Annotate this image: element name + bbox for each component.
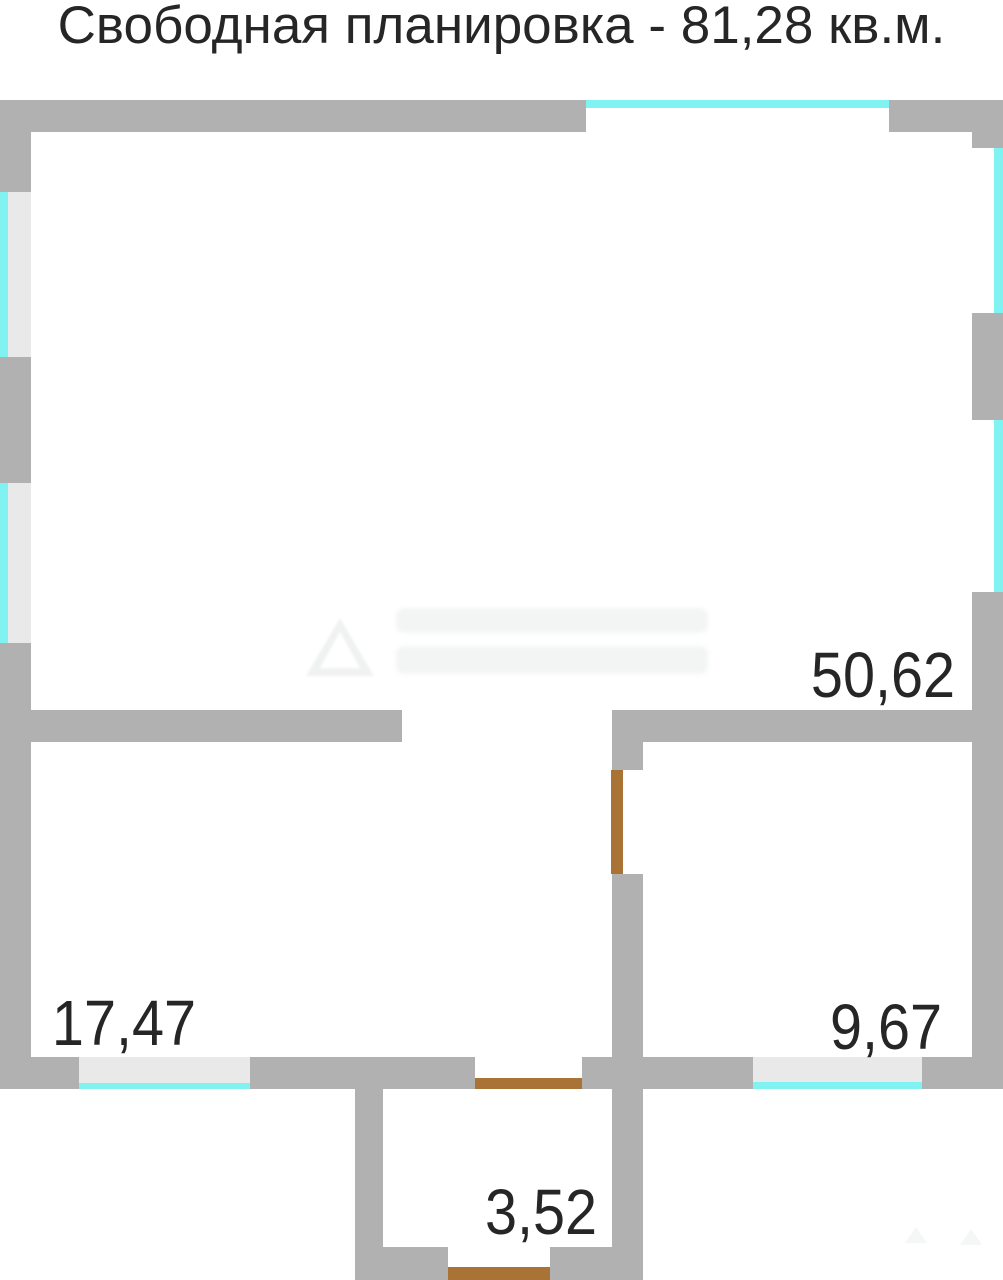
wall-top-right-corner: [972, 132, 1003, 148]
window-left-upper-fill: [8, 192, 31, 357]
wall-left-upper: [0, 132, 31, 192]
wall-stub-hall: [612, 742, 643, 770]
door-interior-right-room: [611, 770, 623, 874]
wall-vestibule-bottom-right: [550, 1247, 643, 1280]
window-right-upper: [994, 148, 1003, 313]
watermark-logo-icon: [306, 598, 378, 678]
wall-interior-right: [612, 710, 972, 742]
window-bottom-right: [753, 1082, 922, 1089]
floorplan-page: Свободная планировка - 81,28 кв.м.: [0, 0, 1003, 1280]
wall-interior-left: [31, 710, 402, 742]
wall-top-left-segment: [0, 100, 586, 132]
wall-vestibule-left: [355, 1089, 383, 1247]
room-area-label-left: 17,47: [52, 991, 196, 1055]
watermark-mini-icon-1: [905, 1227, 927, 1243]
floor-plan: 50,62 17,47 9,67 3,52: [0, 0, 1003, 1280]
window-left-upper: [0, 192, 8, 357]
wall-right-middle: [972, 313, 1003, 420]
window-bottom-left-fill: [79, 1057, 250, 1083]
room-area-label-vestibule: 3,52: [485, 1180, 597, 1244]
watermark-text-line-2: [396, 646, 708, 674]
door-hall-to-vestibule: [475, 1078, 582, 1089]
window-left-lower: [0, 483, 8, 643]
room-area-label-main: 50,62: [811, 643, 955, 707]
wall-hall-right-room: [612, 874, 643, 1059]
wall-left-lower: [0, 643, 31, 1089]
wall-right-lower: [972, 592, 1003, 1089]
room-area-label-right: 9,67: [830, 995, 942, 1059]
wall-left-middle: [0, 357, 31, 483]
window-bottom-left: [79, 1083, 250, 1089]
window-top: [586, 100, 889, 108]
window-left-lower-fill: [8, 483, 31, 643]
door-entrance: [448, 1267, 550, 1280]
wall-top-right-segment: [889, 100, 1003, 132]
watermark-mini-icon-2: [960, 1229, 982, 1245]
window-right-lower: [994, 420, 1003, 592]
watermark-text-line-1: [396, 608, 708, 633]
wall-vestibule-bottom-left: [355, 1247, 448, 1280]
